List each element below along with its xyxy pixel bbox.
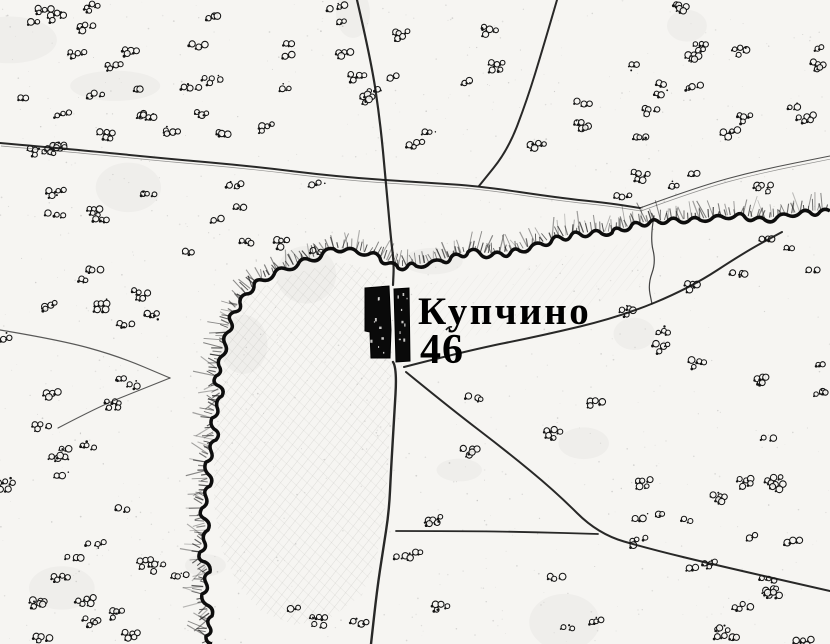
historical-map-canvas: Купчино 46 bbox=[0, 0, 830, 644]
house-number-label: 46 bbox=[420, 327, 464, 373]
historical-map-frame: Купчино 46 bbox=[0, 0, 830, 644]
village-buildings bbox=[365, 286, 410, 362]
